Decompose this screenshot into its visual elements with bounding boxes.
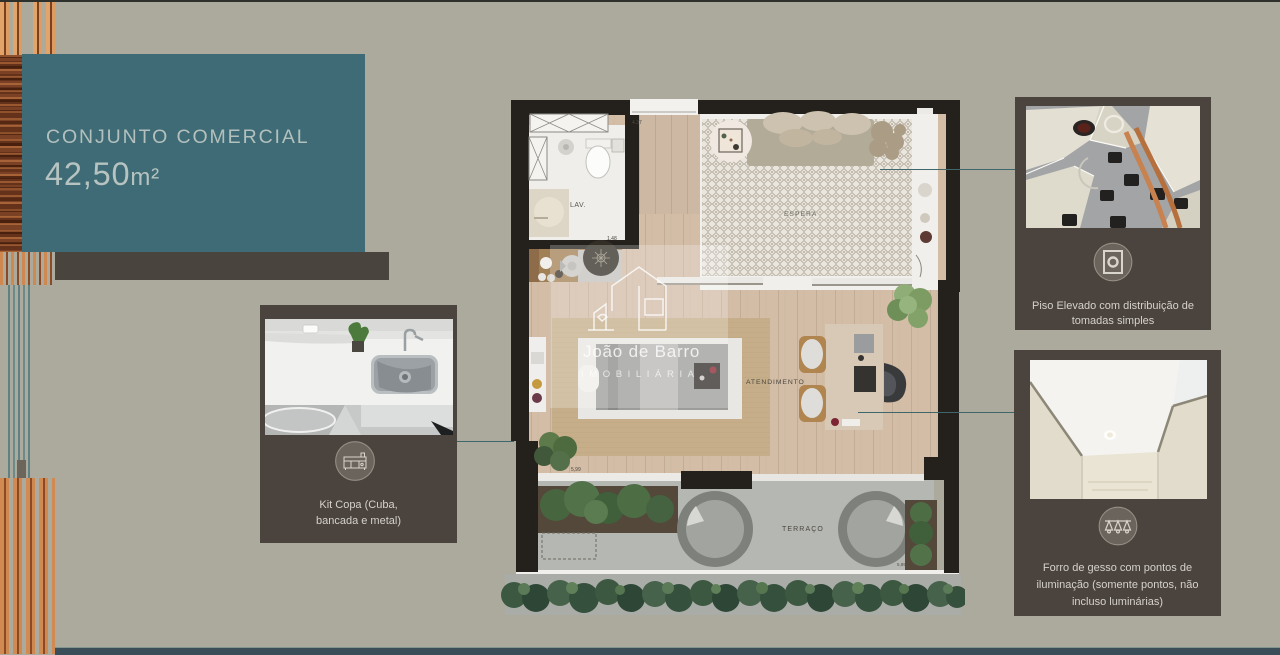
svg-text:TERRAÇO: TERRAÇO: [782, 526, 824, 533]
svg-text:ESPERA: ESPERA: [784, 211, 818, 218]
svg-text:5,89: 5,89: [897, 562, 906, 567]
svg-text:João de Barro: João de Barro: [583, 342, 700, 361]
svg-text:IMOBILIÁRIA: IMOBILIÁRIA: [581, 369, 700, 380]
svg-text:4.37: 4.37: [632, 120, 642, 126]
svg-text:1.48: 1.48: [607, 236, 617, 242]
svg-text:ATENDIMENTO: ATENDIMENTO: [746, 379, 805, 386]
svg-text:5,99: 5,99: [571, 467, 581, 473]
svg-text:LAV.: LAV.: [570, 202, 586, 209]
